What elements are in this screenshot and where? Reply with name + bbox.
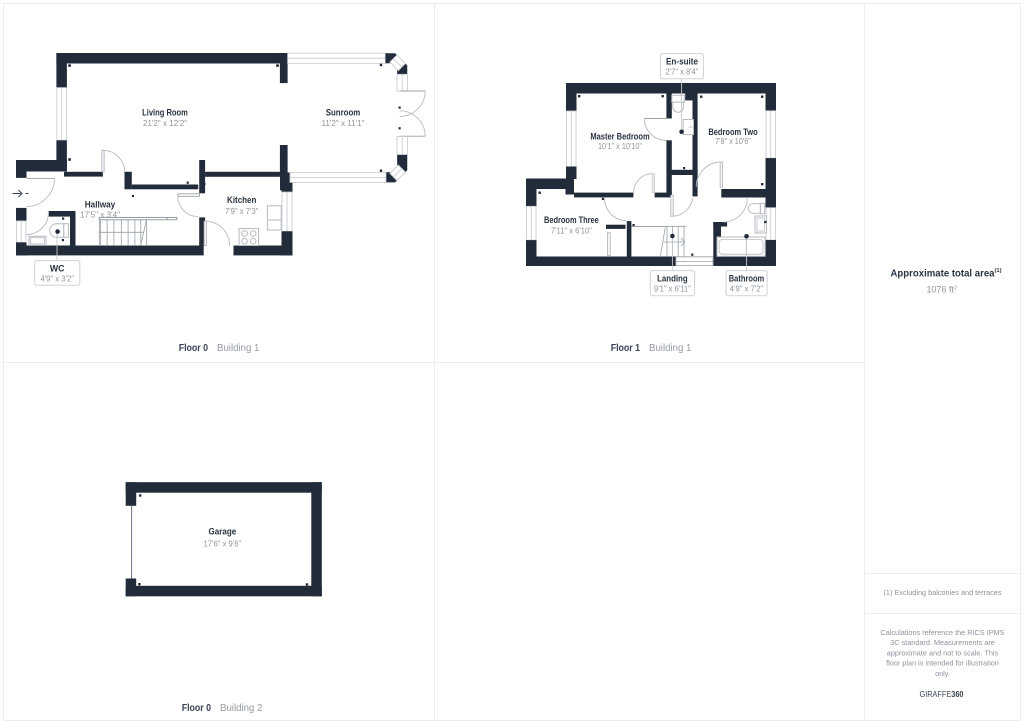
svg-text:2'7" x 8'4": 2'7" x 8'4" <box>666 68 699 77</box>
svg-text:Living Room: Living Room <box>142 108 188 118</box>
svg-text:Building 2: Building 2 <box>220 703 262 714</box>
svg-text:Building 1: Building 1 <box>217 343 259 354</box>
svg-text:11'2" x 11'1": 11'2" x 11'1" <box>322 119 365 128</box>
svg-text:approximate and not to scale.: approximate and not to scale. This <box>887 648 999 657</box>
svg-text:Bedroom Two: Bedroom Two <box>708 127 758 137</box>
svg-text:Floor 1: Floor 1 <box>611 343 641 354</box>
svg-text:Building 1: Building 1 <box>649 343 691 354</box>
svg-text:Kitchen: Kitchen <box>227 195 256 205</box>
svg-text:only.: only. <box>935 669 950 678</box>
svg-text:17'5" x 3'4": 17'5" x 3'4" <box>80 211 120 220</box>
svg-text:9'1" x 6'11": 9'1" x 6'11" <box>654 285 691 294</box>
svg-text:Landing: Landing <box>657 274 688 284</box>
svg-text:10'1" x 10'10": 10'1" x 10'10" <box>598 142 642 151</box>
svg-text:7'11" x 6'10": 7'11" x 6'10" <box>551 227 592 236</box>
svg-text:Master Bedroom: Master Bedroom <box>590 131 649 141</box>
svg-text:Bedroom Three: Bedroom Three <box>544 215 599 225</box>
svg-text:Floor 0: Floor 0 <box>179 343 209 354</box>
svg-text:WC: WC <box>50 264 65 274</box>
svg-text:floor plan is intended for ill: floor plan is intended for illustration <box>886 659 999 668</box>
svg-text:7'9" x 7'3": 7'9" x 7'3" <box>225 207 259 216</box>
svg-text:GIRAFFE360: GIRAFFE360 <box>920 689 964 699</box>
svg-text:17'6" x 9'6": 17'6" x 9'6" <box>204 539 242 548</box>
svg-text:En-suite: En-suite <box>666 57 698 67</box>
svg-text:Floor 0: Floor 0 <box>182 703 212 714</box>
svg-text:Approximate total area: Approximate total area <box>891 269 996 280</box>
svg-text:7'8" x 10'6": 7'8" x 10'6" <box>715 137 751 146</box>
svg-text:Garage: Garage <box>209 527 237 537</box>
svg-text:Bathroom: Bathroom <box>729 274 765 284</box>
svg-text:4'9" x 7'2": 4'9" x 7'2" <box>730 285 764 294</box>
svg-text:Hallway: Hallway <box>85 200 116 210</box>
svg-text:(1): (1) <box>995 268 1002 274</box>
svg-text:4'9" x 3'2": 4'9" x 3'2" <box>40 275 74 284</box>
svg-text:21'2" x 12'2": 21'2" x 12'2" <box>143 119 187 128</box>
svg-text:1076 ft2: 1076 ft2 <box>927 285 958 295</box>
svg-text:Calculations reference the RIC: Calculations reference the RICS IPMS <box>880 628 1004 637</box>
svg-text:3C standard. Measurements are: 3C standard. Measurements are <box>890 638 995 647</box>
svg-text:Sunroom: Sunroom <box>326 108 361 118</box>
svg-text:(1) Excluding balconies and te: (1) Excluding balconies and terraces <box>883 588 1001 597</box>
